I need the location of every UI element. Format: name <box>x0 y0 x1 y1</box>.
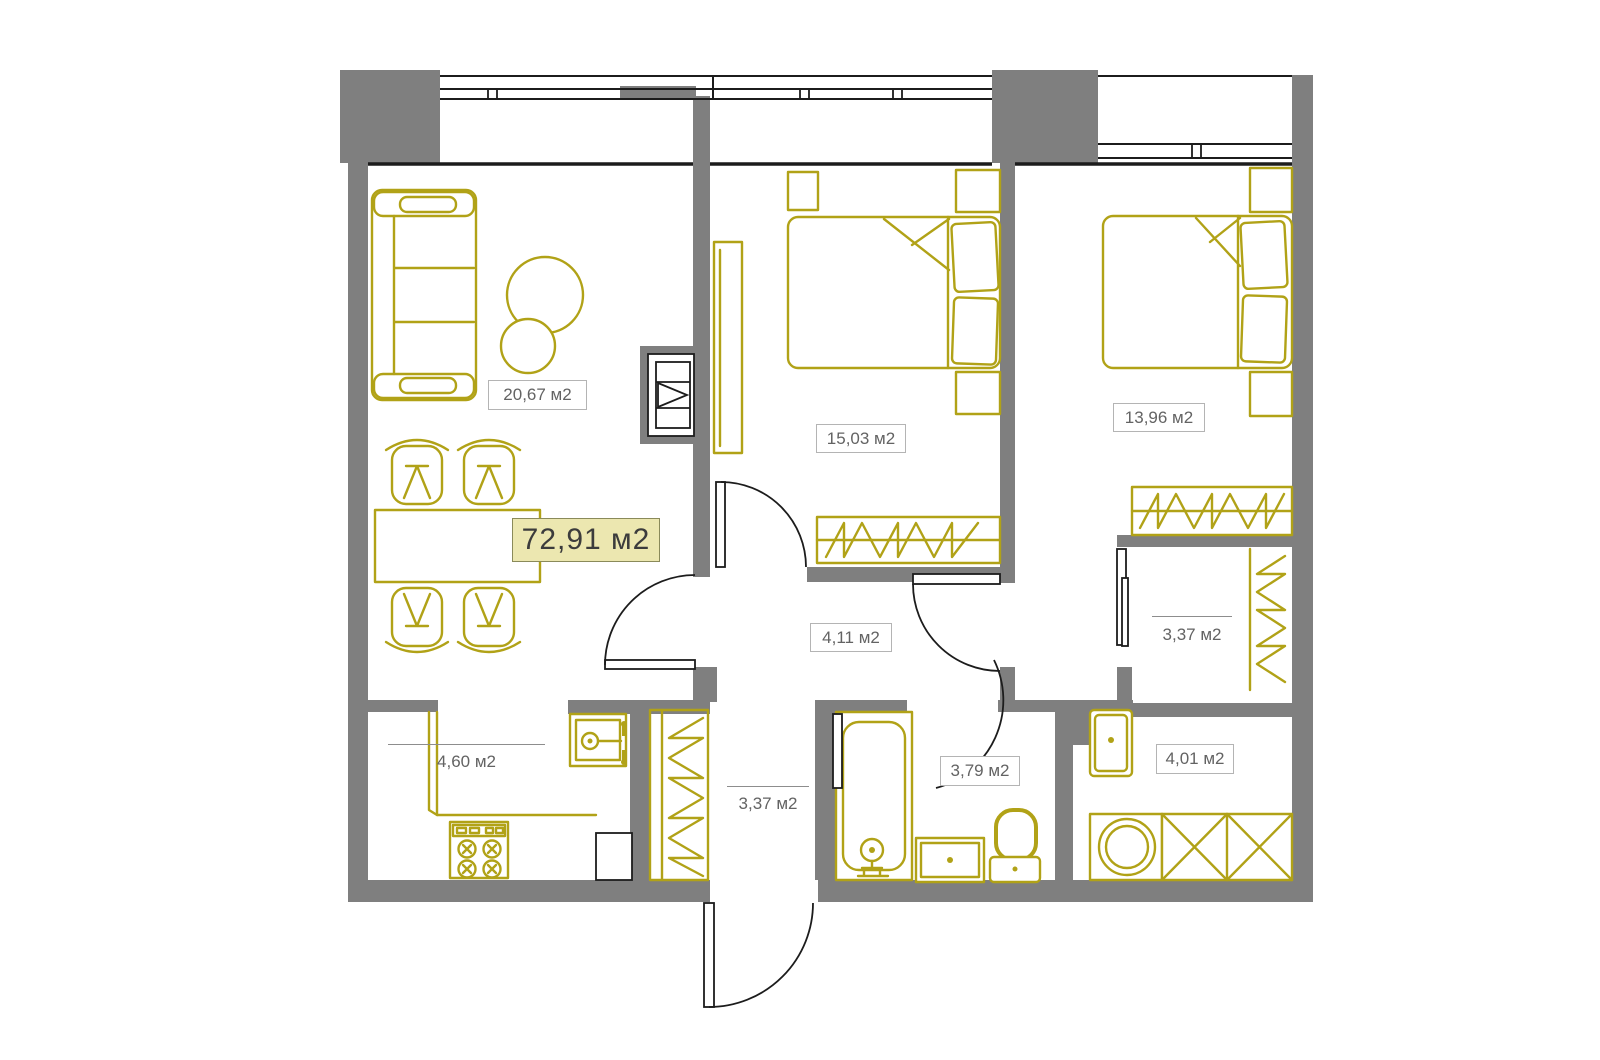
bed-1 <box>788 217 1000 368</box>
area-label-laundry: 4,01 м2 <box>1156 744 1234 774</box>
door-bedroom-1 <box>716 482 806 567</box>
area-label-bedroom-2: 13,96 м2 <box>1113 403 1205 432</box>
nightstand-1-bottom <box>956 372 1000 414</box>
shower-screen <box>833 714 842 788</box>
wardrobe-bedroom-2 <box>1132 487 1292 535</box>
area-label-closet-hall: 3,37 м2 <box>1152 616 1232 650</box>
nightstand-1-top <box>956 170 1000 212</box>
dresser-bedroom-1 <box>788 172 818 210</box>
area-label-hall: 4,11 м2 <box>810 623 892 652</box>
nightstand-2-top <box>1250 168 1292 212</box>
toilet <box>990 810 1040 882</box>
windows <box>368 76 1292 164</box>
sofa <box>372 190 476 400</box>
coffee-tables <box>501 257 583 373</box>
area-label-bathroom: 3,79 м2 <box>940 756 1020 786</box>
bed-2 <box>1103 216 1292 368</box>
washing-machine <box>1090 814 1162 880</box>
shelf-bedroom-1 <box>714 242 742 453</box>
area-label-kitchen: 4,60 м2 <box>388 744 545 776</box>
door-living-room <box>605 575 695 669</box>
kitchen-sink <box>570 714 627 766</box>
door-hall <box>913 574 1000 671</box>
door-closet-hall <box>1117 549 1128 646</box>
laundry-sink <box>1090 710 1132 776</box>
wardrobe-entry-hall <box>650 710 708 880</box>
kitchen-niche <box>596 833 632 880</box>
bathtub <box>836 712 912 880</box>
area-label-living-room: 20,67 м2 <box>488 380 587 410</box>
entry-door <box>704 903 813 1007</box>
area-label-bedroom-1: 15,03 м2 <box>816 424 906 453</box>
wardrobe-bedroom-1 <box>817 517 1000 563</box>
floor-plan: 20,67 м2 15,03 м2 13,96 м2 4,11 м2 3,37 … <box>0 0 1600 1060</box>
laundry-cabinet <box>1162 814 1292 880</box>
total-area-badge: 72,91 м2 <box>512 518 660 562</box>
wardrobe-closet-hall <box>1250 549 1285 690</box>
stove <box>450 822 508 878</box>
nightstand-2-bottom <box>1250 372 1292 416</box>
bathroom-cabinet <box>916 838 984 882</box>
area-label-entry-hall: 3,37 м2 <box>727 786 809 818</box>
vent-shaft <box>640 346 702 444</box>
floor-plan-drawing <box>0 0 1600 1060</box>
